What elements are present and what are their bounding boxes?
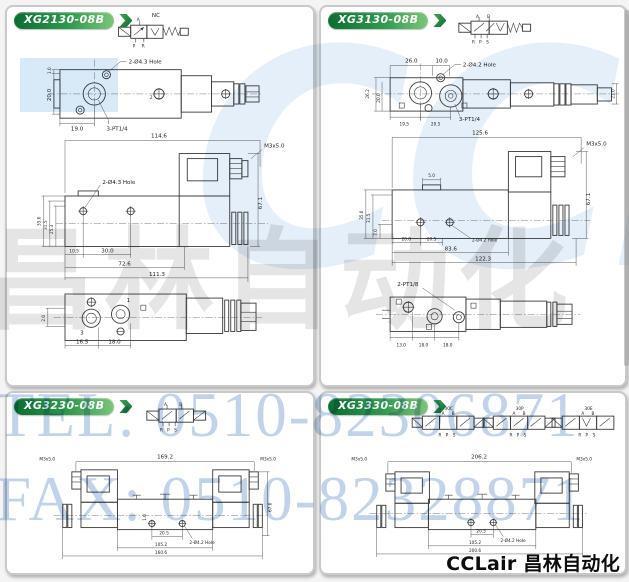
valve-symbol-5-2: A B R P S [459, 14, 531, 44]
dim-label: 20.0 [376, 93, 381, 103]
dim-label: 67.0 [267, 502, 273, 512]
page-edge-shadow [624, 10, 629, 366]
dim-label: 20.5 [427, 236, 437, 241]
chevron-right-icon [433, 14, 446, 27]
panel-xg3330: 30C A B R P S 30P A B R P S 30E A B [319, 391, 627, 575]
dim-label: 5.0 [428, 173, 435, 178]
side-view: 114.6 M3x5.0 67.1 2-Ø4.3 Hole [37, 133, 285, 282]
port-label: P [133, 43, 136, 48]
dim-label: 1.0 [142, 514, 148, 521]
dim-label: 160.6 [155, 550, 167, 556]
port-label: 3 [80, 330, 84, 336]
dim-label: 10.0 [435, 59, 448, 65]
dim-label: 26.0 [405, 59, 418, 65]
dim-label: 25.3 [49, 224, 54, 234]
port-label: A [164, 402, 167, 408]
xg2130-drawing: NC A P R [7, 7, 313, 385]
valve-symbol-5-3-exhaust: 30E A B R P S [552, 406, 614, 438]
brand-text: CCLair 昌林自动化 [446, 549, 620, 576]
dim-label: 2-Ø4.2 Hole [500, 537, 526, 544]
panel-title-banner: XG2130-08B [14, 12, 132, 29]
dim-label: 21.0 [610, 89, 615, 99]
dim-label: M3x5.0 [39, 457, 55, 463]
dim-label: 19.0 [71, 126, 84, 132]
dim-label: 2-Ø4.3 Hole [102, 179, 136, 186]
port-label: P [446, 432, 449, 438]
port-label: 1 [127, 298, 131, 304]
dim-label: 125.6 [472, 130, 488, 136]
dim-label: 30.0 [101, 249, 114, 255]
port-label: S [453, 432, 456, 438]
chevron-right-icon [119, 14, 132, 27]
front-view: 169.2 M3x5.0 M3x5.0 67.0 [39, 455, 276, 559]
dim-label: M3x5.0 [260, 457, 276, 463]
dim-label: 2-PT1/8 [397, 282, 419, 288]
port-label: R [160, 427, 163, 433]
dim-label: 206.2 [471, 455, 487, 461]
dim-label: 20.5 [476, 529, 486, 535]
dim-label: M3x5.0 [351, 457, 367, 463]
dim-label: 105.2 [155, 542, 167, 548]
port-label: R [142, 43, 145, 48]
xg3330-drawing: 30C A B R P S 30P A B R P S 30E A B [321, 393, 625, 573]
port-label: P [585, 432, 588, 438]
port-label: P [479, 39, 482, 44]
dim-label: 13.0 [397, 343, 407, 348]
dim-label: 2-Ø4.2 Hole [472, 236, 498, 242]
valve-symbol-5-2-double: A B R P S [147, 402, 206, 433]
dim-label: 2-Ø4.3 Hole [129, 59, 163, 66]
dim-label: 105.2 [469, 540, 481, 546]
panel-title: XG3230-08B [14, 398, 114, 415]
dim-label: 18.0 [443, 343, 453, 348]
chevron-right-icon [433, 400, 446, 413]
panel-xg3130: A B R P S 26.0 10.0 [319, 5, 627, 387]
symbol-label: NC [152, 13, 160, 19]
dim-label: 67.1 [258, 196, 264, 209]
port-label: S [593, 432, 596, 438]
port-label: R [439, 432, 442, 438]
port-label: P [167, 427, 170, 433]
dim-label: 35.0 [359, 210, 364, 220]
panel-xg3230: A B R P S 169.2 M3x5.0 M3x5.0 [5, 391, 315, 575]
dim-label: 31.5 [366, 213, 371, 223]
panel-xg2130: NC A P R [5, 5, 315, 387]
dim-label: 20.5 [431, 121, 441, 126]
top-view: 1.0 20.0 19.0 2-Ø4.3 Hole 3-PT1/4 2 [47, 59, 262, 133]
port-label: R [578, 432, 581, 438]
port-label: A [137, 17, 140, 22]
dim-label: M3x5.0 [576, 457, 592, 463]
dim-label: M3x5.0 [586, 141, 607, 147]
panel-title-banner: XG3230-08B [14, 398, 132, 415]
dim-label: 3-PT1/4 [106, 126, 128, 132]
dim-label: 26.2 [365, 89, 370, 99]
port-label: B [179, 402, 182, 408]
dim-label: 10.5 [69, 249, 79, 254]
dim-label: 7.0 [373, 229, 378, 236]
port-label: S [486, 39, 489, 44]
xg3130-drawing: A B R P S 26.0 10.0 [321, 7, 625, 385]
panel-title: XG3130-08B [328, 12, 428, 29]
dim-label: 3-PT1/4 [459, 117, 481, 123]
dim-label: 19.5 [400, 121, 410, 126]
dim-label: 1.0 [47, 67, 52, 74]
panel-title-banner: XG3330-08B [328, 398, 446, 415]
dim-label: 2-Ø4.2 Hole [463, 62, 497, 69]
front-view: 206.2 M3x5.0 M3x5.0 2 [351, 455, 592, 557]
dim-label: 18.0 [108, 340, 121, 346]
port-label: R [509, 432, 512, 438]
dim-label: 2-Ø4.2 Hole [189, 539, 215, 546]
dim-label: 31.5 [43, 220, 48, 230]
dim-label: 114.6 [151, 133, 167, 139]
side-view: 125.6 M3x5.0 5.0 67.1 [359, 130, 607, 265]
dim-label: 67.1 [586, 192, 592, 205]
dim-label: 18.0 [419, 343, 429, 348]
dim-label: 169.2 [157, 455, 173, 461]
bottom-view: 2-PT1/8 13.0 18.0 18.0 [376, 282, 580, 348]
dim-label: 20.0 [47, 88, 53, 101]
chevron-right-icon [119, 400, 132, 413]
dim-label: 122.3 [475, 257, 491, 263]
dim-label: 83.6 [445, 247, 458, 253]
top-view: 26.0 10.0 26.2 20.0 21.0 [365, 59, 621, 127]
dim-label: 2.0 [41, 315, 46, 322]
port-label: A [476, 14, 479, 19]
valve-symbol-5-3-pressure: 30P A B R P S [483, 406, 555, 438]
dim-label: 72.6 [118, 262, 131, 268]
dim-label: M3x5.0 [264, 143, 285, 149]
port-label: P [517, 432, 520, 438]
xg3230-drawing: A B R P S 169.2 M3x5.0 M3x5.0 [7, 393, 313, 573]
dim-label: 16.5 [76, 340, 89, 346]
panel-title: XG2130-08B [14, 12, 114, 29]
dim-label: 35.0 [37, 216, 42, 226]
dim-label: 20.8 [402, 236, 412, 241]
bottom-view: 3 1 2.0 16.5 18.0 [41, 294, 262, 349]
panel-title: XG3330-08B [328, 398, 428, 415]
port-label: S [524, 432, 527, 438]
port-label: R [472, 39, 475, 44]
port-label: B [487, 14, 490, 19]
dim-label: 20.5 [159, 531, 169, 537]
port-label: S [174, 427, 177, 433]
port-label: 2 [150, 95, 153, 100]
dim-label: 111.3 [149, 272, 165, 278]
panel-title-banner: XG3130-08B [328, 12, 446, 29]
